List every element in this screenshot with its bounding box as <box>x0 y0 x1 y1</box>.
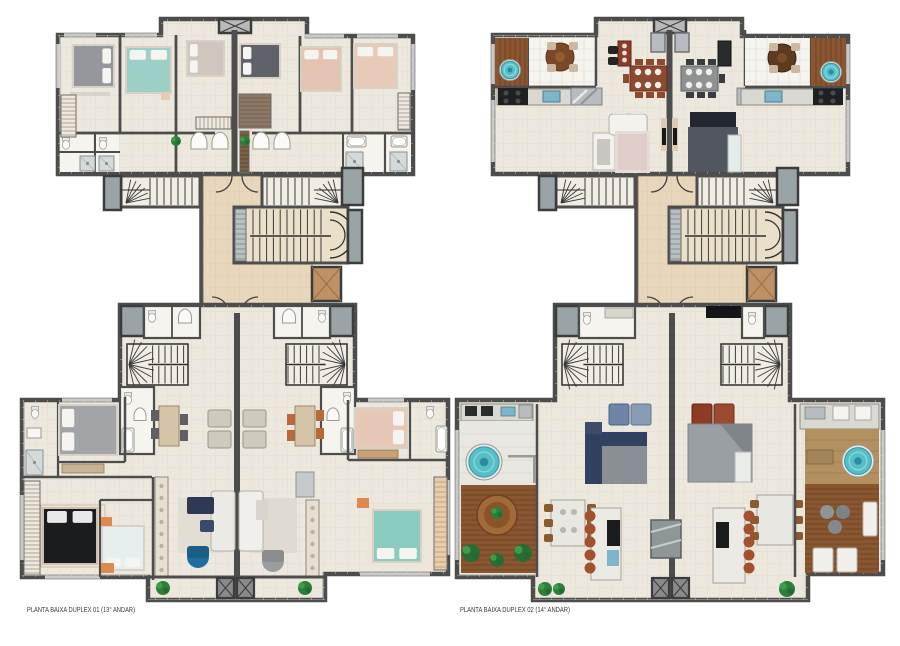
svg-text:PLANTA BAIXA DUPLEX 01 (13° AN: PLANTA BAIXA DUPLEX 01 (13° ANDAR) <box>27 606 135 614</box>
svg-text:PLANTA BAIXA DUPLEX 02 (14° AN: PLANTA BAIXA DUPLEX 02 (14° ANDAR) <box>460 606 570 614</box>
